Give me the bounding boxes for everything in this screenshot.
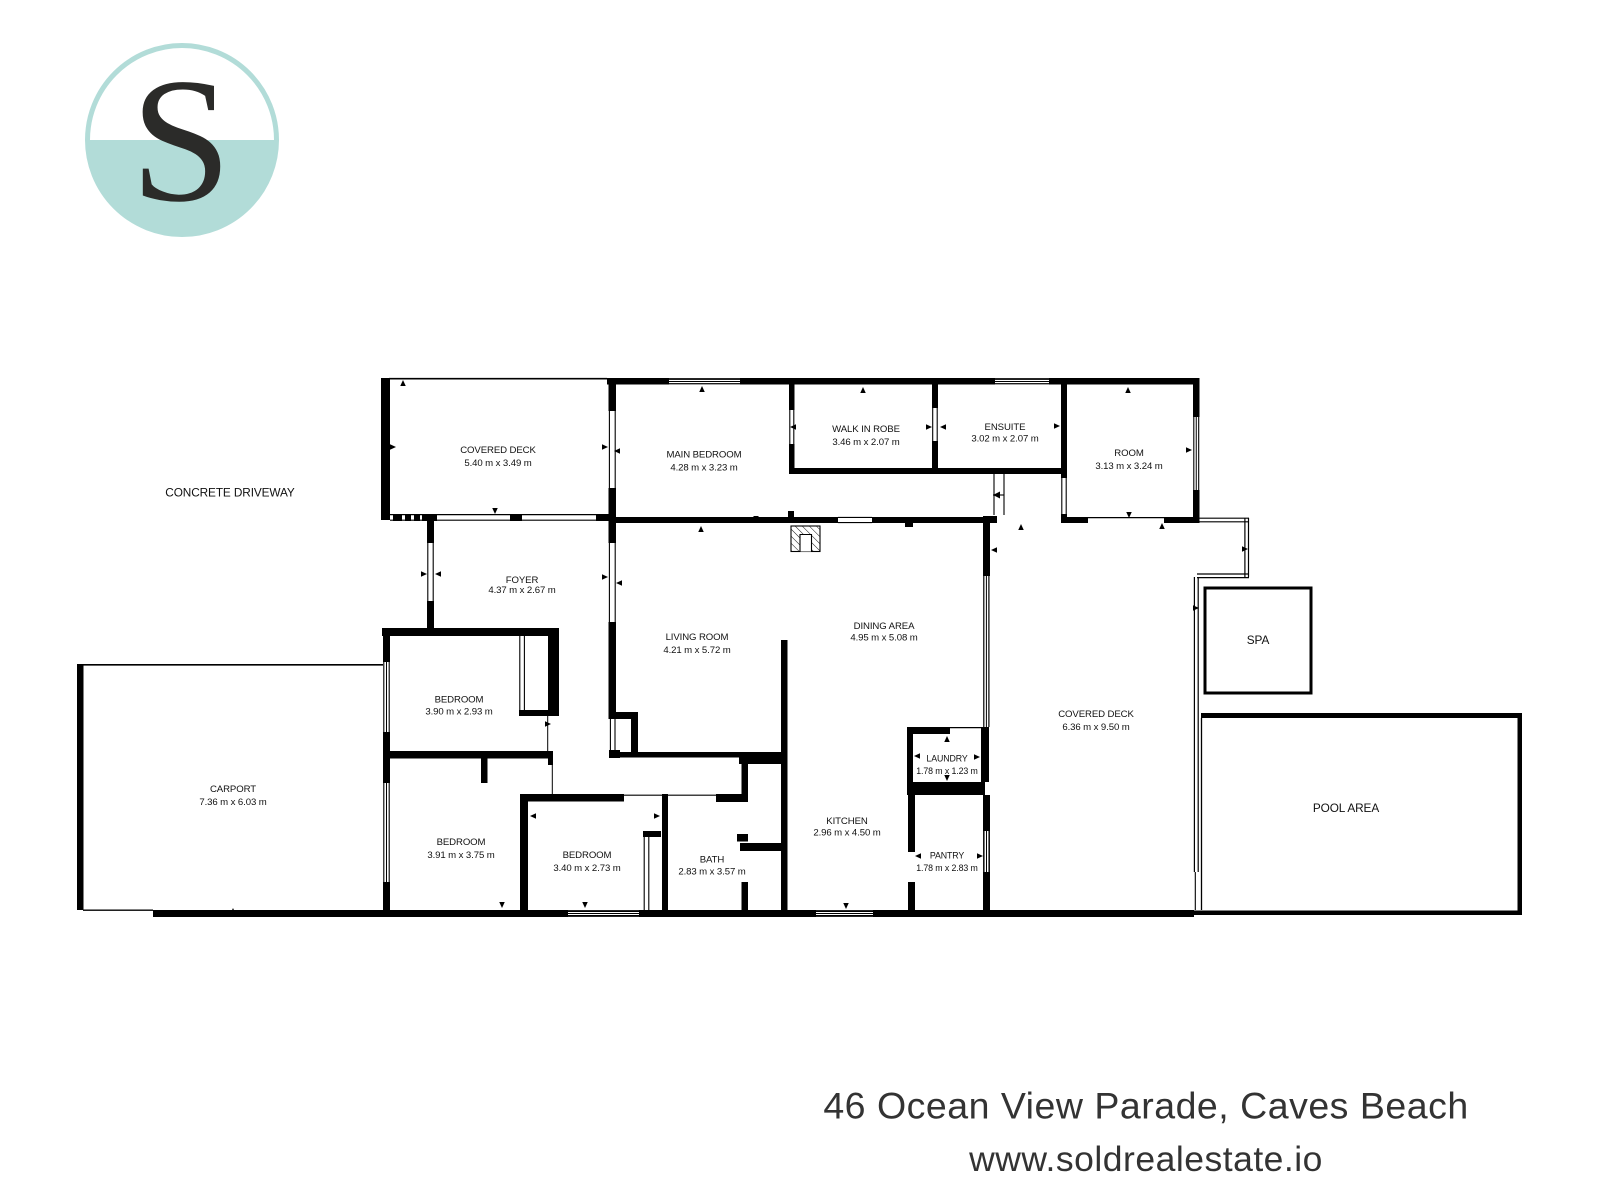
svg-text:4.37 m x 2.67 m: 4.37 m x 2.67 m [488, 585, 555, 596]
svg-text:3.46 m x 2.07 m: 3.46 m x 2.07 m [832, 437, 899, 448]
svg-text:BATH: BATH [700, 855, 725, 866]
svg-text:4.28 m x 3.23 m: 4.28 m x 3.23 m [670, 463, 737, 474]
svg-text:3.91 m x 3.75 m: 3.91 m x 3.75 m [427, 850, 494, 861]
svg-text:46 Ocean View Parade, Caves Be: 46 Ocean View Parade, Caves Beach [823, 1085, 1468, 1127]
svg-text:BEDROOM: BEDROOM [563, 850, 612, 861]
svg-text:LIVING ROOM: LIVING ROOM [666, 632, 729, 643]
svg-text:3.02 m x 2.07 m: 3.02 m x 2.07 m [971, 434, 1038, 445]
svg-text:6.36 m x 9.50 m: 6.36 m x 9.50 m [1062, 722, 1129, 733]
svg-text:S: S [131, 42, 232, 239]
svg-text:3.13 m x 3.24 m: 3.13 m x 3.24 m [1095, 461, 1162, 472]
svg-text:BEDROOM: BEDROOM [437, 837, 486, 848]
svg-text:DINING AREA: DINING AREA [854, 621, 915, 632]
svg-text:www.soldrealestate.io: www.soldrealestate.io [968, 1139, 1323, 1179]
svg-text:3.40 m x 2.73 m: 3.40 m x 2.73 m [553, 863, 620, 874]
svg-text:7.36 m x 6.03 m: 7.36 m x 6.03 m [199, 797, 266, 808]
svg-text:ENSUITE: ENSUITE [985, 422, 1026, 433]
svg-text:2.83 m x 3.57 m: 2.83 m x 3.57 m [678, 867, 745, 878]
svg-text:COVERED DECK: COVERED DECK [460, 445, 536, 456]
svg-text:SPA: SPA [1247, 633, 1270, 647]
svg-text:WALK IN ROBE: WALK IN ROBE [832, 424, 900, 435]
svg-text:KITCHEN: KITCHEN [826, 816, 868, 827]
svg-text:5.40 m x 3.49 m: 5.40 m x 3.49 m [464, 458, 531, 469]
svg-text:3.90 m x 2.93 m: 3.90 m x 2.93 m [425, 707, 492, 718]
svg-text:ROOM: ROOM [1114, 448, 1144, 459]
svg-text:BEDROOM: BEDROOM [435, 695, 484, 706]
svg-text:POOL AREA: POOL AREA [1313, 801, 1379, 815]
svg-text:2.96 m x 4.50 m: 2.96 m x 4.50 m [813, 828, 880, 839]
svg-text:1.78 m x 1.23 m: 1.78 m x 1.23 m [916, 766, 978, 776]
svg-text:LAUNDRY: LAUNDRY [926, 754, 967, 764]
svg-text:COVERED DECK: COVERED DECK [1058, 709, 1134, 720]
svg-text:4.21 m x 5.72 m: 4.21 m x 5.72 m [663, 645, 730, 656]
svg-text:CARPORT: CARPORT [210, 784, 256, 795]
svg-text:PANTRY: PANTRY [930, 851, 965, 861]
svg-text:4.95 m x 5.08 m: 4.95 m x 5.08 m [850, 633, 917, 644]
svg-text:MAIN BEDROOM: MAIN BEDROOM [666, 450, 741, 461]
svg-text:CONCRETE DRIVEWAY: CONCRETE DRIVEWAY [165, 486, 295, 500]
svg-text:1.78 m x 2.83 m: 1.78 m x 2.83 m [916, 863, 978, 873]
